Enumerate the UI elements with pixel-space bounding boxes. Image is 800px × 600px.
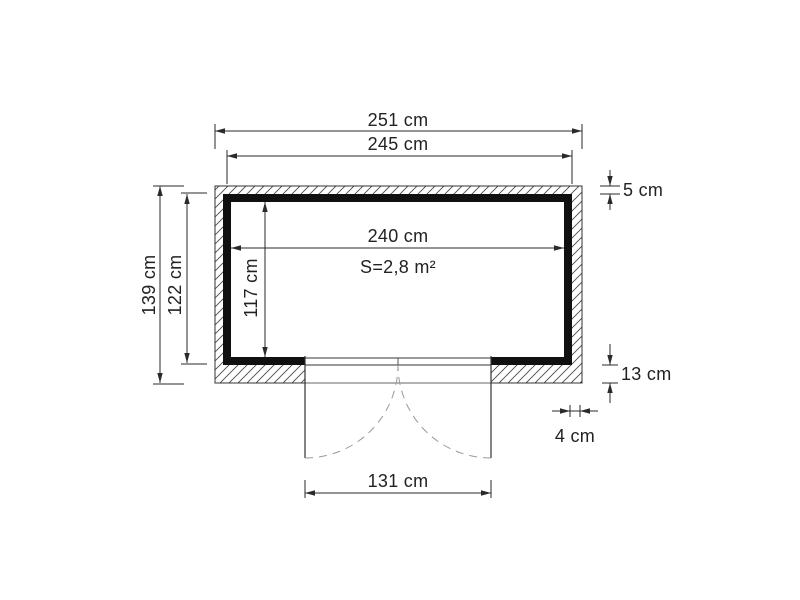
inner-wall (227, 198, 568, 361)
dim-frame-width: 245 cm (227, 134, 572, 184)
dim-top-wall-label: 5 cm (623, 180, 663, 200)
dim-door-width: 131 cm (305, 471, 491, 498)
dim-bottom-wall-label: 13 cm (621, 364, 672, 384)
dim-frame-depth-label: 122 cm (165, 255, 185, 316)
dim-inner-depth-label: 117 cm (241, 258, 261, 318)
dim-inner-width-label: 240 cm (368, 226, 429, 246)
dim-bottom-wall-thickness: 13 cm (602, 344, 672, 403)
area-label: S=2,8 m² (360, 257, 436, 277)
door (305, 352, 491, 458)
dim-door-width-label: 131 cm (368, 471, 429, 491)
dim-outer-width-label: 251 cm (368, 110, 429, 130)
dim-inner-width: 240 cm (231, 226, 564, 248)
dim-frame-width-label: 245 cm (368, 134, 429, 154)
floor-plan-drawing: 251 cm 245 cm 139 cm 122 cm 240 cm (0, 0, 800, 600)
dim-side-offset-label: 4 cm (555, 426, 595, 446)
floor-plan-page: 251 cm 245 cm 139 cm 122 cm 240 cm (0, 0, 800, 600)
dim-inner-depth: 117 cm (241, 202, 265, 357)
dim-side-offset: 4 cm (552, 405, 598, 446)
dim-outer-depth-label: 139 cm (139, 255, 159, 316)
dim-frame-depth: 122 cm (165, 193, 207, 364)
dim-top-wall-thickness: 5 cm (600, 170, 663, 210)
